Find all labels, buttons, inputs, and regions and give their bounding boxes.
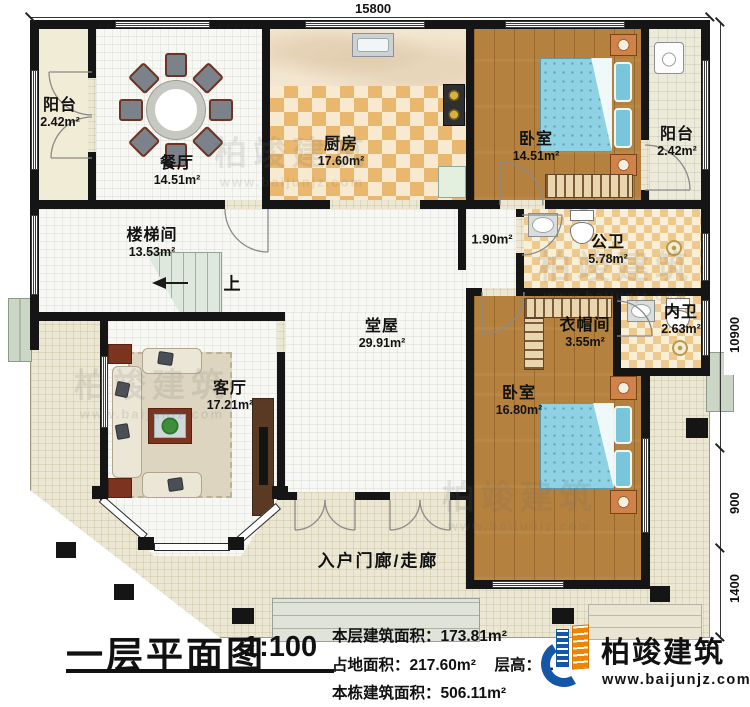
room-label-public-bath: 公卫 5.78m² — [588, 234, 628, 266]
window — [505, 21, 625, 28]
floor-area-stat: 本层建筑面积：173.81m² — [332, 624, 507, 646]
fridge-icon — [438, 166, 466, 198]
pillow-icon — [614, 62, 632, 102]
pillow-icon — [614, 108, 632, 148]
window — [31, 215, 38, 295]
room-corridor — [466, 209, 516, 288]
room-stairwell-hall — [38, 209, 466, 312]
washing-machine-icon — [654, 42, 684, 74]
bay-column — [92, 486, 108, 499]
porch-column — [552, 608, 574, 624]
side-table-icon — [108, 478, 132, 498]
dining-chair-icon — [119, 99, 143, 121]
wall — [38, 312, 285, 321]
dimension-right-upper-label: 10900 — [724, 295, 745, 375]
wall — [88, 152, 96, 209]
room-label-bedroom-bottom: 卧室 16.80m² — [496, 385, 543, 417]
sofa-pillow — [115, 423, 130, 440]
window — [101, 356, 108, 428]
wardrobe-icon — [545, 174, 633, 198]
closet-icon — [524, 298, 612, 318]
planter-box-left — [8, 298, 32, 362]
logo-icon — [540, 623, 600, 699]
pillow-icon — [614, 406, 632, 444]
sofa-pillow — [157, 351, 174, 366]
room-label-living: 客厅 17.21m² — [207, 380, 254, 412]
logo-website-url: www.baijunjz.com — [602, 672, 750, 688]
dining-table-icon — [147, 81, 205, 139]
wall — [262, 20, 270, 209]
porch-column — [650, 586, 670, 602]
kitchen-sink-icon — [352, 33, 394, 57]
window — [702, 300, 709, 356]
land-area-stat: 占地面积：217.60m² 层高：3. — [332, 653, 554, 675]
wall — [516, 253, 524, 296]
room-label-main-hall: 堂屋 29.91m² — [359, 318, 406, 350]
wall — [613, 296, 621, 376]
wall — [30, 200, 225, 209]
window — [115, 21, 210, 28]
bay-column — [138, 537, 154, 550]
dimension-right-middle-label: 900 — [724, 478, 745, 528]
dining-chair-icon — [209, 99, 233, 121]
dining-chair-icon — [165, 53, 187, 77]
room-label-ensuite-bath: 内卫 2.63m² — [661, 304, 701, 336]
window — [31, 70, 38, 170]
wall — [458, 209, 466, 270]
window — [702, 233, 709, 281]
bay-window — [154, 543, 230, 551]
pillow-icon — [614, 450, 632, 488]
shower-icon — [666, 240, 682, 256]
wall — [88, 20, 96, 78]
nightstand-icon — [610, 490, 637, 514]
wall — [641, 20, 649, 140]
dimension-right-lower-label: 1400 — [724, 558, 745, 620]
room-label-bedroom-top: 卧室 14.51m² — [513, 131, 560, 163]
closet-icon — [524, 318, 544, 370]
room-label-corridor: 1.90m² — [471, 233, 512, 248]
room-label-stairwell: 楼梯间 13.53m² — [126, 227, 177, 259]
window — [492, 581, 564, 588]
wall — [466, 288, 474, 580]
dimension-line-top — [30, 17, 710, 18]
plant-icon — [160, 416, 180, 436]
side-table-icon — [108, 344, 132, 364]
storey-stat: 层高： — [495, 657, 542, 674]
wall — [268, 200, 330, 209]
wall — [420, 200, 500, 209]
nightstand-icon — [610, 154, 637, 176]
window — [642, 438, 649, 533]
porch-column — [56, 542, 76, 558]
sink-icon — [627, 300, 655, 322]
dimension-line-right — [720, 22, 721, 638]
wall — [641, 190, 649, 209]
tv-cabinet-icon — [252, 398, 274, 516]
floor-plan-canvas: 15800 10900 900 1400 — [0, 0, 750, 707]
room-label-balcony-right: 阳台 2.42m² — [657, 126, 697, 158]
porch-column — [114, 584, 134, 600]
porch-column — [686, 418, 708, 438]
sink-icon — [528, 213, 558, 237]
nightstand-icon — [610, 376, 637, 400]
stove-icon — [443, 84, 465, 126]
wall — [277, 352, 285, 500]
wall — [524, 288, 710, 296]
room-label-kitchen: 厨房 17.60m² — [318, 136, 365, 168]
shower-icon — [672, 340, 688, 356]
logo-company-name: 柏竣建筑 — [601, 629, 725, 671]
wall — [545, 200, 710, 209]
room-label-dining: 餐厅 14.51m² — [154, 155, 201, 187]
total-area-stat: 本栋建筑面积：506.11m² — [332, 681, 506, 703]
nightstand-icon — [610, 34, 637, 56]
wall — [450, 492, 474, 500]
dimension-top-label: 15800 — [352, 1, 394, 16]
wall — [355, 492, 390, 500]
room-label-entrance-porch: 入户门廊/走廊 — [318, 551, 439, 570]
room-label-cloakroom: 衣帽间 3.55m² — [559, 317, 610, 349]
bay-column — [272, 486, 288, 499]
wall — [613, 368, 710, 376]
window — [305, 21, 425, 28]
window — [702, 60, 709, 170]
stairs-up-label: 上 — [224, 274, 241, 293]
sofa-pillow — [167, 477, 184, 492]
scale-label: 1:100 — [243, 631, 317, 664]
title-underline — [66, 669, 334, 673]
wall — [466, 20, 474, 209]
bay-column — [228, 537, 244, 550]
porch-column — [232, 608, 254, 624]
wall — [516, 209, 524, 217]
room-label-balcony-tl: 阳台 2.42m² — [40, 97, 80, 129]
